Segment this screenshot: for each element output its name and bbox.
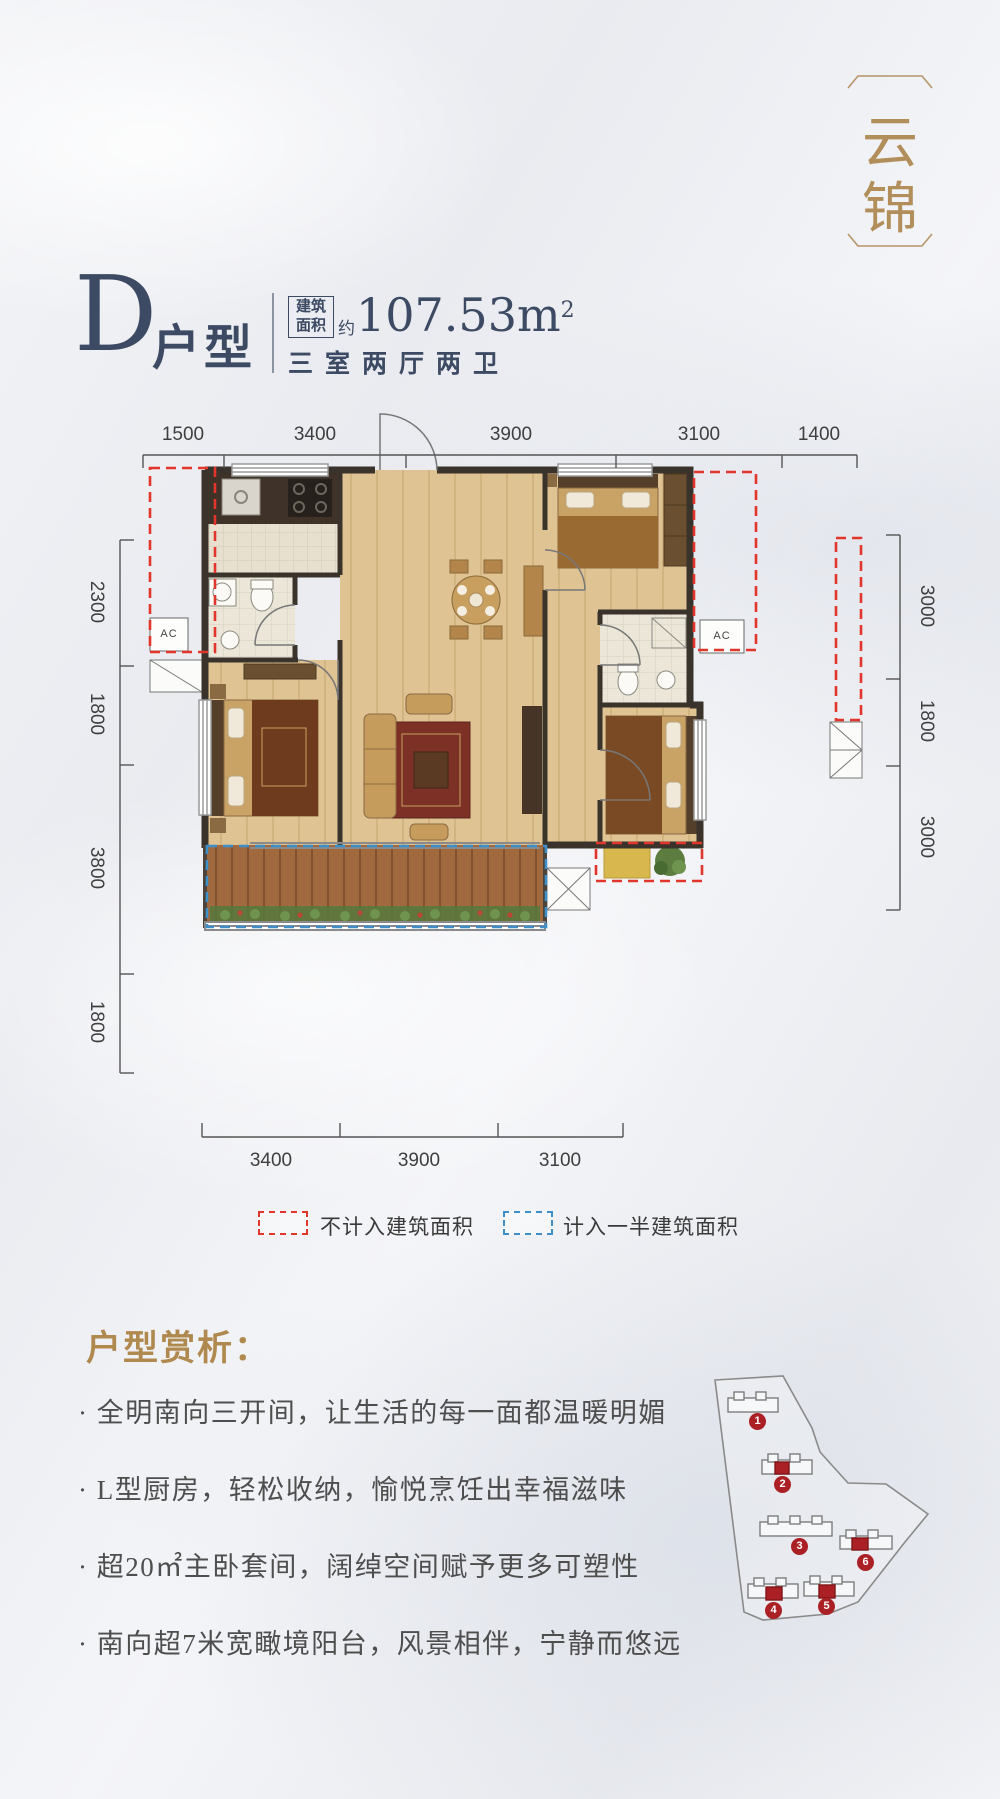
analysis-bullet-4: · 南向超7米宽瞰境阳台，风景相伴，宁静而悠远 xyxy=(78,1622,682,1661)
analysis-bullet-3: · 超20㎡主卧套间，阔绰空间赋予更多可塑性 xyxy=(78,1545,640,1584)
building-badge-3: 3 xyxy=(791,1538,808,1555)
dim-bottom-1: 3400 xyxy=(246,1150,296,1172)
floor-plan xyxy=(150,414,862,930)
dim-right-3: 3000 xyxy=(915,809,937,865)
legend-half-label: 计入一半建筑面积 xyxy=(563,1211,739,1241)
building-badge-4: 4 xyxy=(765,1602,782,1619)
dim-left-4: 1800 xyxy=(85,994,107,1050)
dim-top-5: 1400 xyxy=(794,424,844,446)
analysis-bullet-1: · 全明南向三开间，让生活的每一面都温暖明媚 xyxy=(78,1391,667,1430)
building-badge-5: 5 xyxy=(818,1598,835,1615)
building-badge-2: 2 xyxy=(774,1476,791,1493)
area-value: 107.53m2 xyxy=(356,292,575,338)
area-approx-prefix: 约 xyxy=(338,314,355,339)
area-label-line1: 建筑 xyxy=(289,297,333,316)
legend-excluded-label: 不计入建筑面积 xyxy=(320,1211,474,1241)
area-superscript: 2 xyxy=(561,298,575,323)
site-plan xyxy=(715,1376,928,1620)
ac-label-left: AC xyxy=(150,628,188,640)
bedroom3-bed-icon xyxy=(606,716,699,834)
kitchen-counter-icon xyxy=(207,472,338,524)
bedroom2-bed-icon xyxy=(544,474,688,568)
dim-right-1: 3000 xyxy=(915,578,937,634)
unit-letter: D xyxy=(74,262,157,366)
ac-label-right: AC xyxy=(700,630,744,642)
area-label-line2: 面积 xyxy=(289,316,333,335)
logo-char-2: 锦 xyxy=(848,164,932,245)
dim-bottom-2: 3900 xyxy=(394,1150,444,1172)
legend-excluded-swatch xyxy=(258,1211,308,1235)
plant-icon xyxy=(604,846,686,878)
marketing-page: 云 锦 D 户型 建筑 面积 约 107.53m2 三室两厅两卫 1500 34… xyxy=(0,0,1000,1799)
analysis-bullet-2: · L型厨房，轻松收纳，愉悦烹饪出幸福滋味 xyxy=(78,1468,628,1507)
building-badge-6: 6 xyxy=(857,1554,874,1571)
dim-left-2: 1800 xyxy=(85,686,107,742)
dim-top-4: 3100 xyxy=(674,424,724,446)
dim-right-2: 1800 xyxy=(915,693,937,749)
tv-cabinet-icon xyxy=(522,706,542,814)
dim-bottom-3: 3100 xyxy=(535,1150,585,1172)
building-3 xyxy=(760,1516,832,1536)
dim-top-2: 3400 xyxy=(290,424,340,446)
analysis-title: 户型赏析： xyxy=(86,1320,271,1371)
dim-top-1: 1500 xyxy=(158,424,208,446)
dining-table-icon xyxy=(450,560,543,639)
dim-left-3: 3800 xyxy=(85,840,107,896)
area-label-box: 建筑 面积 xyxy=(288,296,334,338)
building-badge-1: 1 xyxy=(749,1413,766,1430)
sideboard-icon xyxy=(524,566,543,636)
legend-half-swatch xyxy=(503,1211,553,1235)
room-summary: 三室两厅两卫 xyxy=(288,344,510,380)
dim-left-1: 2300 xyxy=(85,574,107,630)
header-divider xyxy=(272,293,274,373)
unit-type-label: 户型 xyxy=(152,308,256,378)
dim-top-3: 3900 xyxy=(486,424,536,446)
